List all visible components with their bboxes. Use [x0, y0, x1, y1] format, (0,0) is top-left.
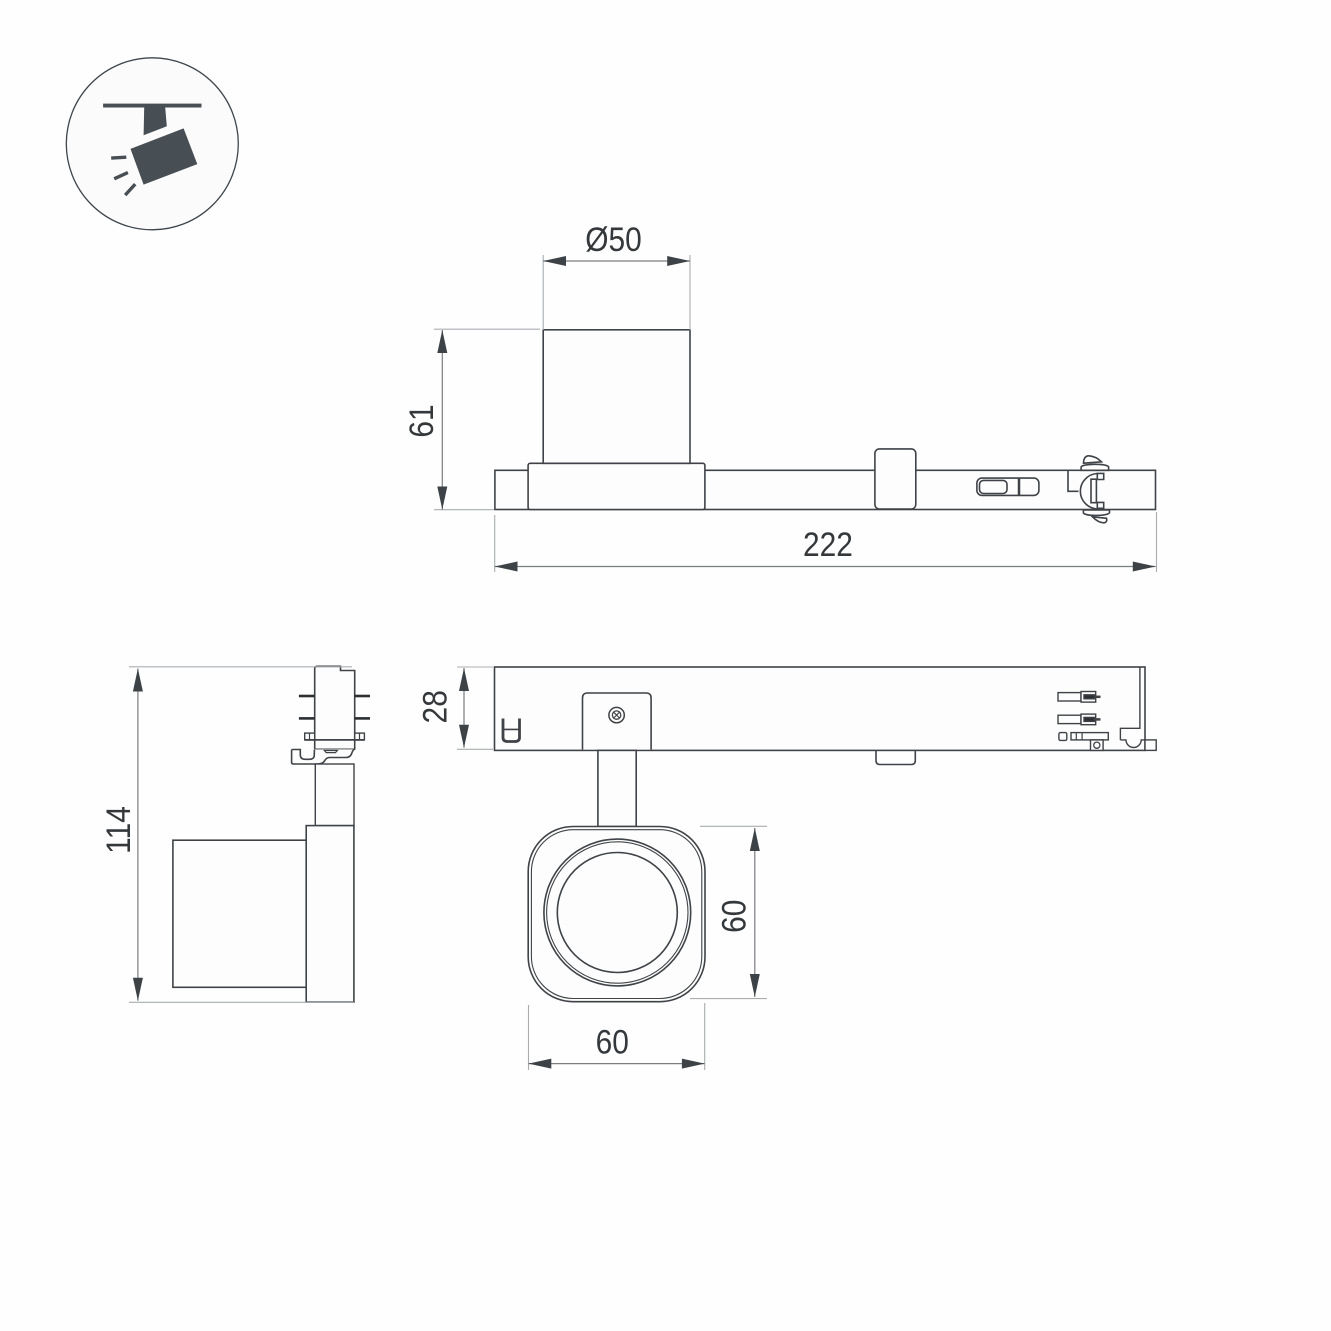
svg-text:61: 61	[402, 404, 440, 437]
svg-text:60: 60	[596, 1023, 629, 1061]
svg-text:60: 60	[715, 900, 753, 933]
svg-text:Ø50: Ø50	[585, 220, 642, 258]
svg-text:222: 222	[803, 525, 853, 563]
svg-text:28: 28	[416, 690, 454, 723]
svg-text:114: 114	[99, 806, 137, 854]
